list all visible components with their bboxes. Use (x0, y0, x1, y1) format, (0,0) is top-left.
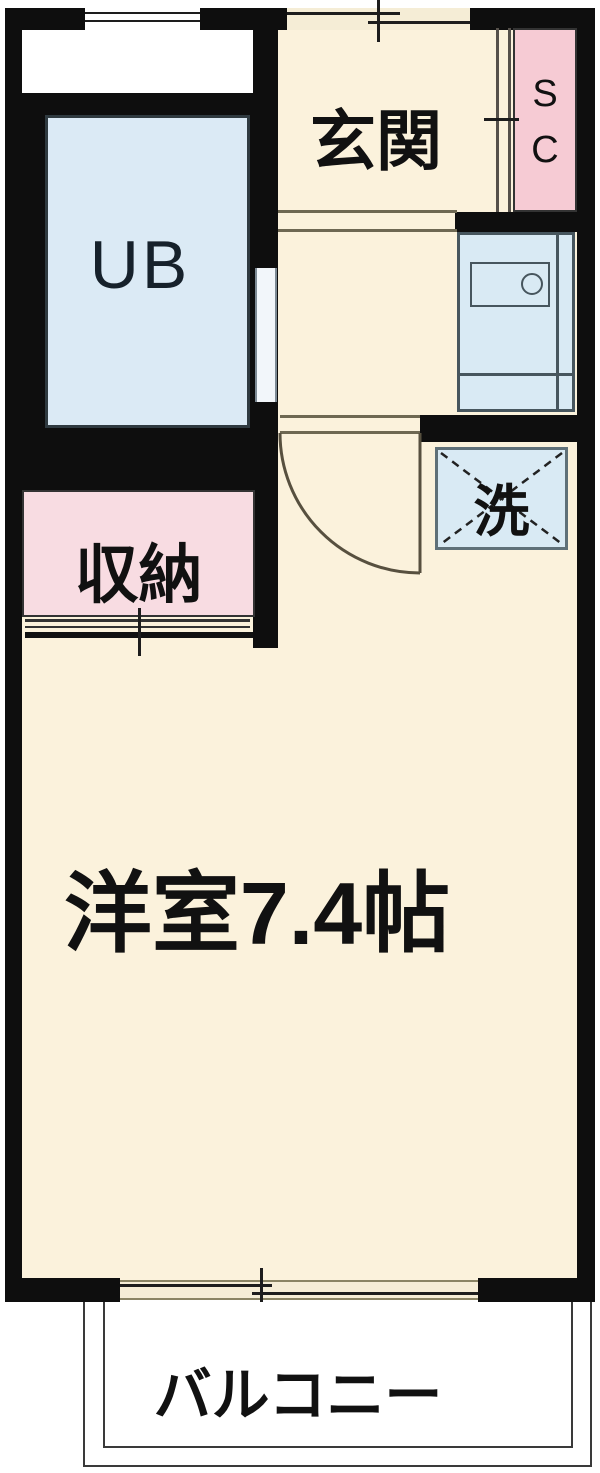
balcony-window-symbol (120, 1280, 478, 1300)
balcony-label: バルコニー (78, 1348, 518, 1432)
door-swing-arc (0, 0, 600, 1473)
floor-plan: UB S C 玄関 洗 収納 (0, 0, 600, 1473)
western-room-label: 洋室7.4帖 (12, 843, 502, 970)
